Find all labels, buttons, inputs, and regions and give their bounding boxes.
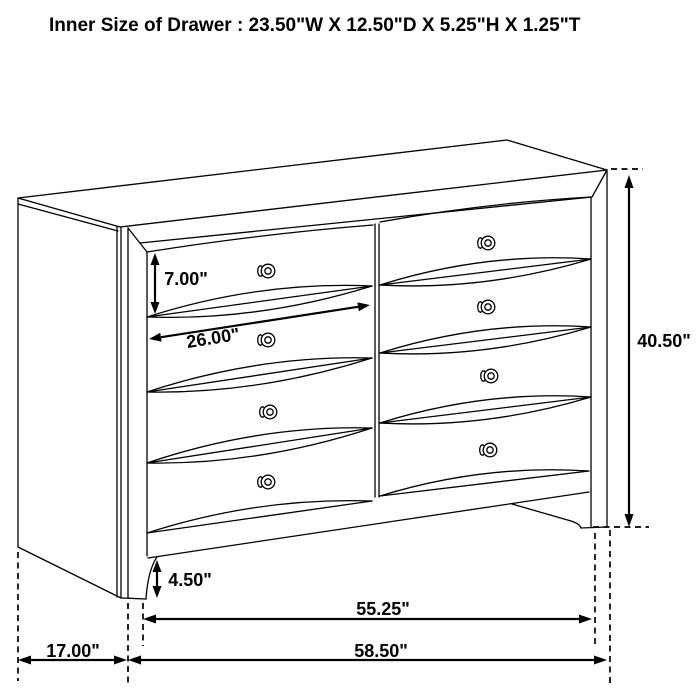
dimension-reference-lines bbox=[18, 169, 649, 684]
dresser-top-panel bbox=[18, 140, 607, 252]
dim-side-depth-label: 17.00" bbox=[44, 641, 102, 661]
drawer-knob-icon bbox=[258, 475, 275, 489]
dresser-left-foot bbox=[122, 557, 157, 599]
dim-base-height-label: 4.50" bbox=[167, 570, 213, 590]
drawer-knob-icon bbox=[480, 443, 497, 457]
dim-base-height-arrow bbox=[153, 560, 162, 598]
dresser-right-foot bbox=[512, 504, 607, 528]
dim-overall-height-label: 40.50" bbox=[635, 331, 693, 351]
drawer-knob-icon bbox=[481, 369, 498, 383]
drawer-knob-icon bbox=[478, 236, 495, 250]
dim-overall-width-label: 58.50" bbox=[352, 641, 410, 661]
drawer-knob-icon bbox=[258, 333, 275, 347]
drawer-knob-icon bbox=[260, 405, 277, 419]
diagram-title: Inner Size of Drawer : 23.50"W X 12.50"D… bbox=[49, 15, 580, 37]
drawer-knobs bbox=[258, 236, 498, 489]
dim-drawer-height-label: 7.00" bbox=[161, 269, 211, 289]
dresser-left-side-panel bbox=[18, 198, 121, 598]
drawer-knob-icon bbox=[478, 300, 495, 314]
drawer-knob-icon bbox=[258, 264, 275, 278]
dresser-case bbox=[18, 140, 607, 599]
dim-overall-height-arrow bbox=[625, 175, 634, 527]
dim-drawer-height-arrow bbox=[151, 253, 160, 314]
dimension-arrows bbox=[18, 175, 634, 665]
dim-leg-span-label: 55.25" bbox=[354, 599, 412, 619]
dresser-line-drawing bbox=[0, 0, 700, 700]
dresser-dimension-diagram: Inner Size of Drawer : 23.50"W X 12.50"D… bbox=[0, 0, 700, 700]
